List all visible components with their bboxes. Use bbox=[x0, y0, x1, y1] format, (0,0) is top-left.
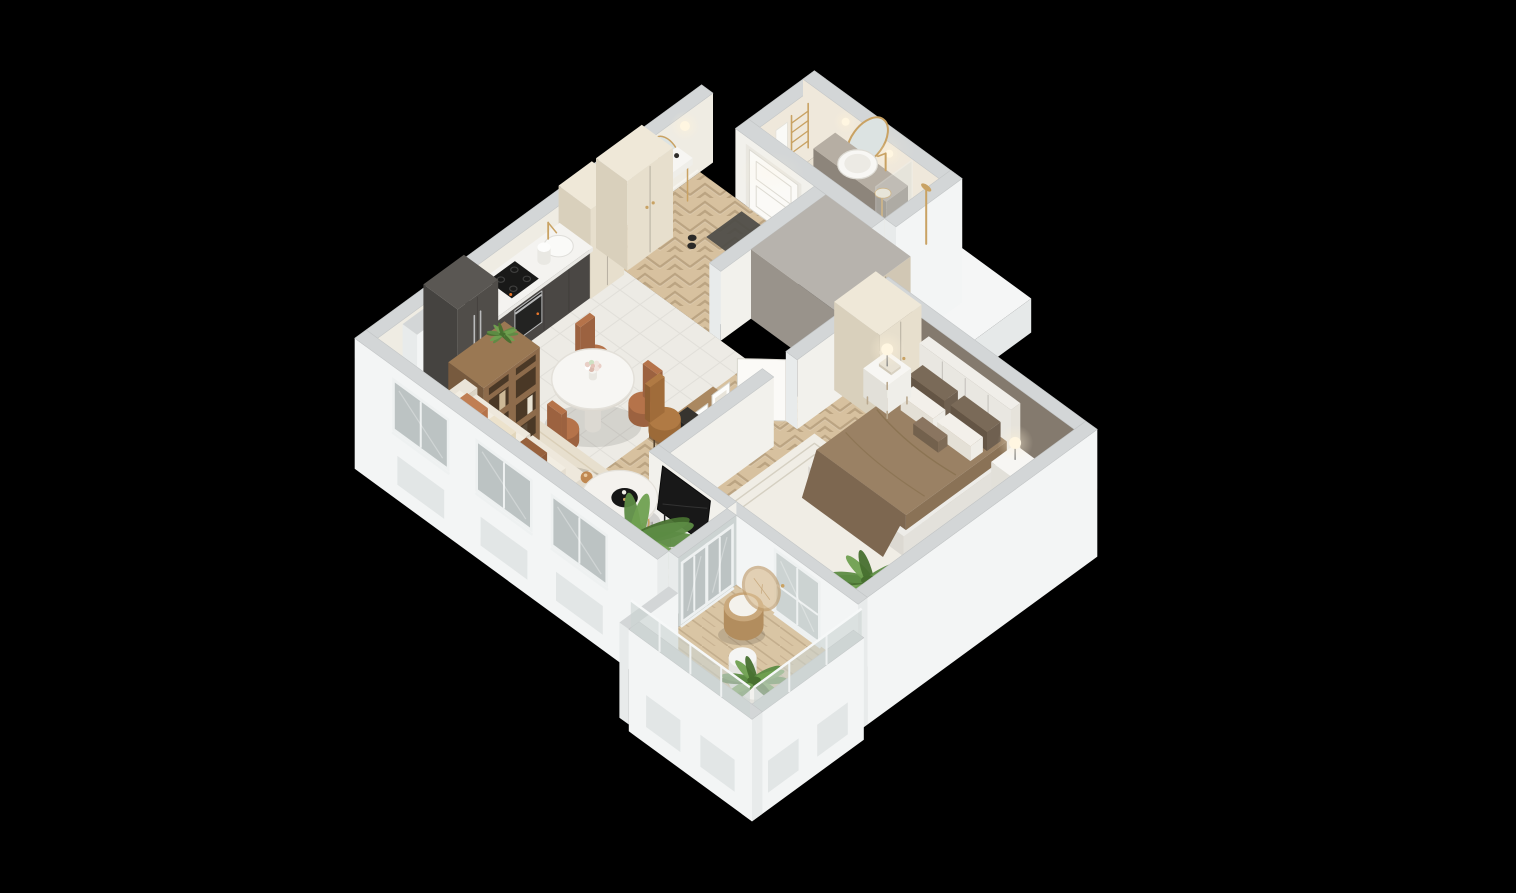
table-lamp-glow bbox=[997, 425, 1033, 461]
shoes bbox=[688, 235, 697, 241]
kitchen-pot bbox=[537, 242, 550, 265]
page: { "meta": { "kind": "isometric-3d-apartm… bbox=[0, 0, 1516, 893]
cooktop-display bbox=[509, 293, 512, 296]
entry-door-glow bbox=[734, 151, 806, 194]
shoes bbox=[687, 243, 696, 249]
tray-candle bbox=[622, 490, 626, 494]
table-lamp-glow bbox=[869, 331, 905, 367]
bathroom-basin-bowl bbox=[844, 154, 870, 173]
bathroom-sconce bbox=[834, 110, 858, 134]
bathroom-sconce bbox=[877, 142, 901, 166]
entry-sconce bbox=[670, 111, 700, 141]
oven-display bbox=[536, 312, 539, 315]
floor-plan-stage bbox=[0, 0, 1516, 893]
isometric-floor-plan bbox=[0, 0, 1516, 893]
console-decor bbox=[674, 153, 679, 158]
amber-glass-highlight bbox=[584, 473, 588, 477]
